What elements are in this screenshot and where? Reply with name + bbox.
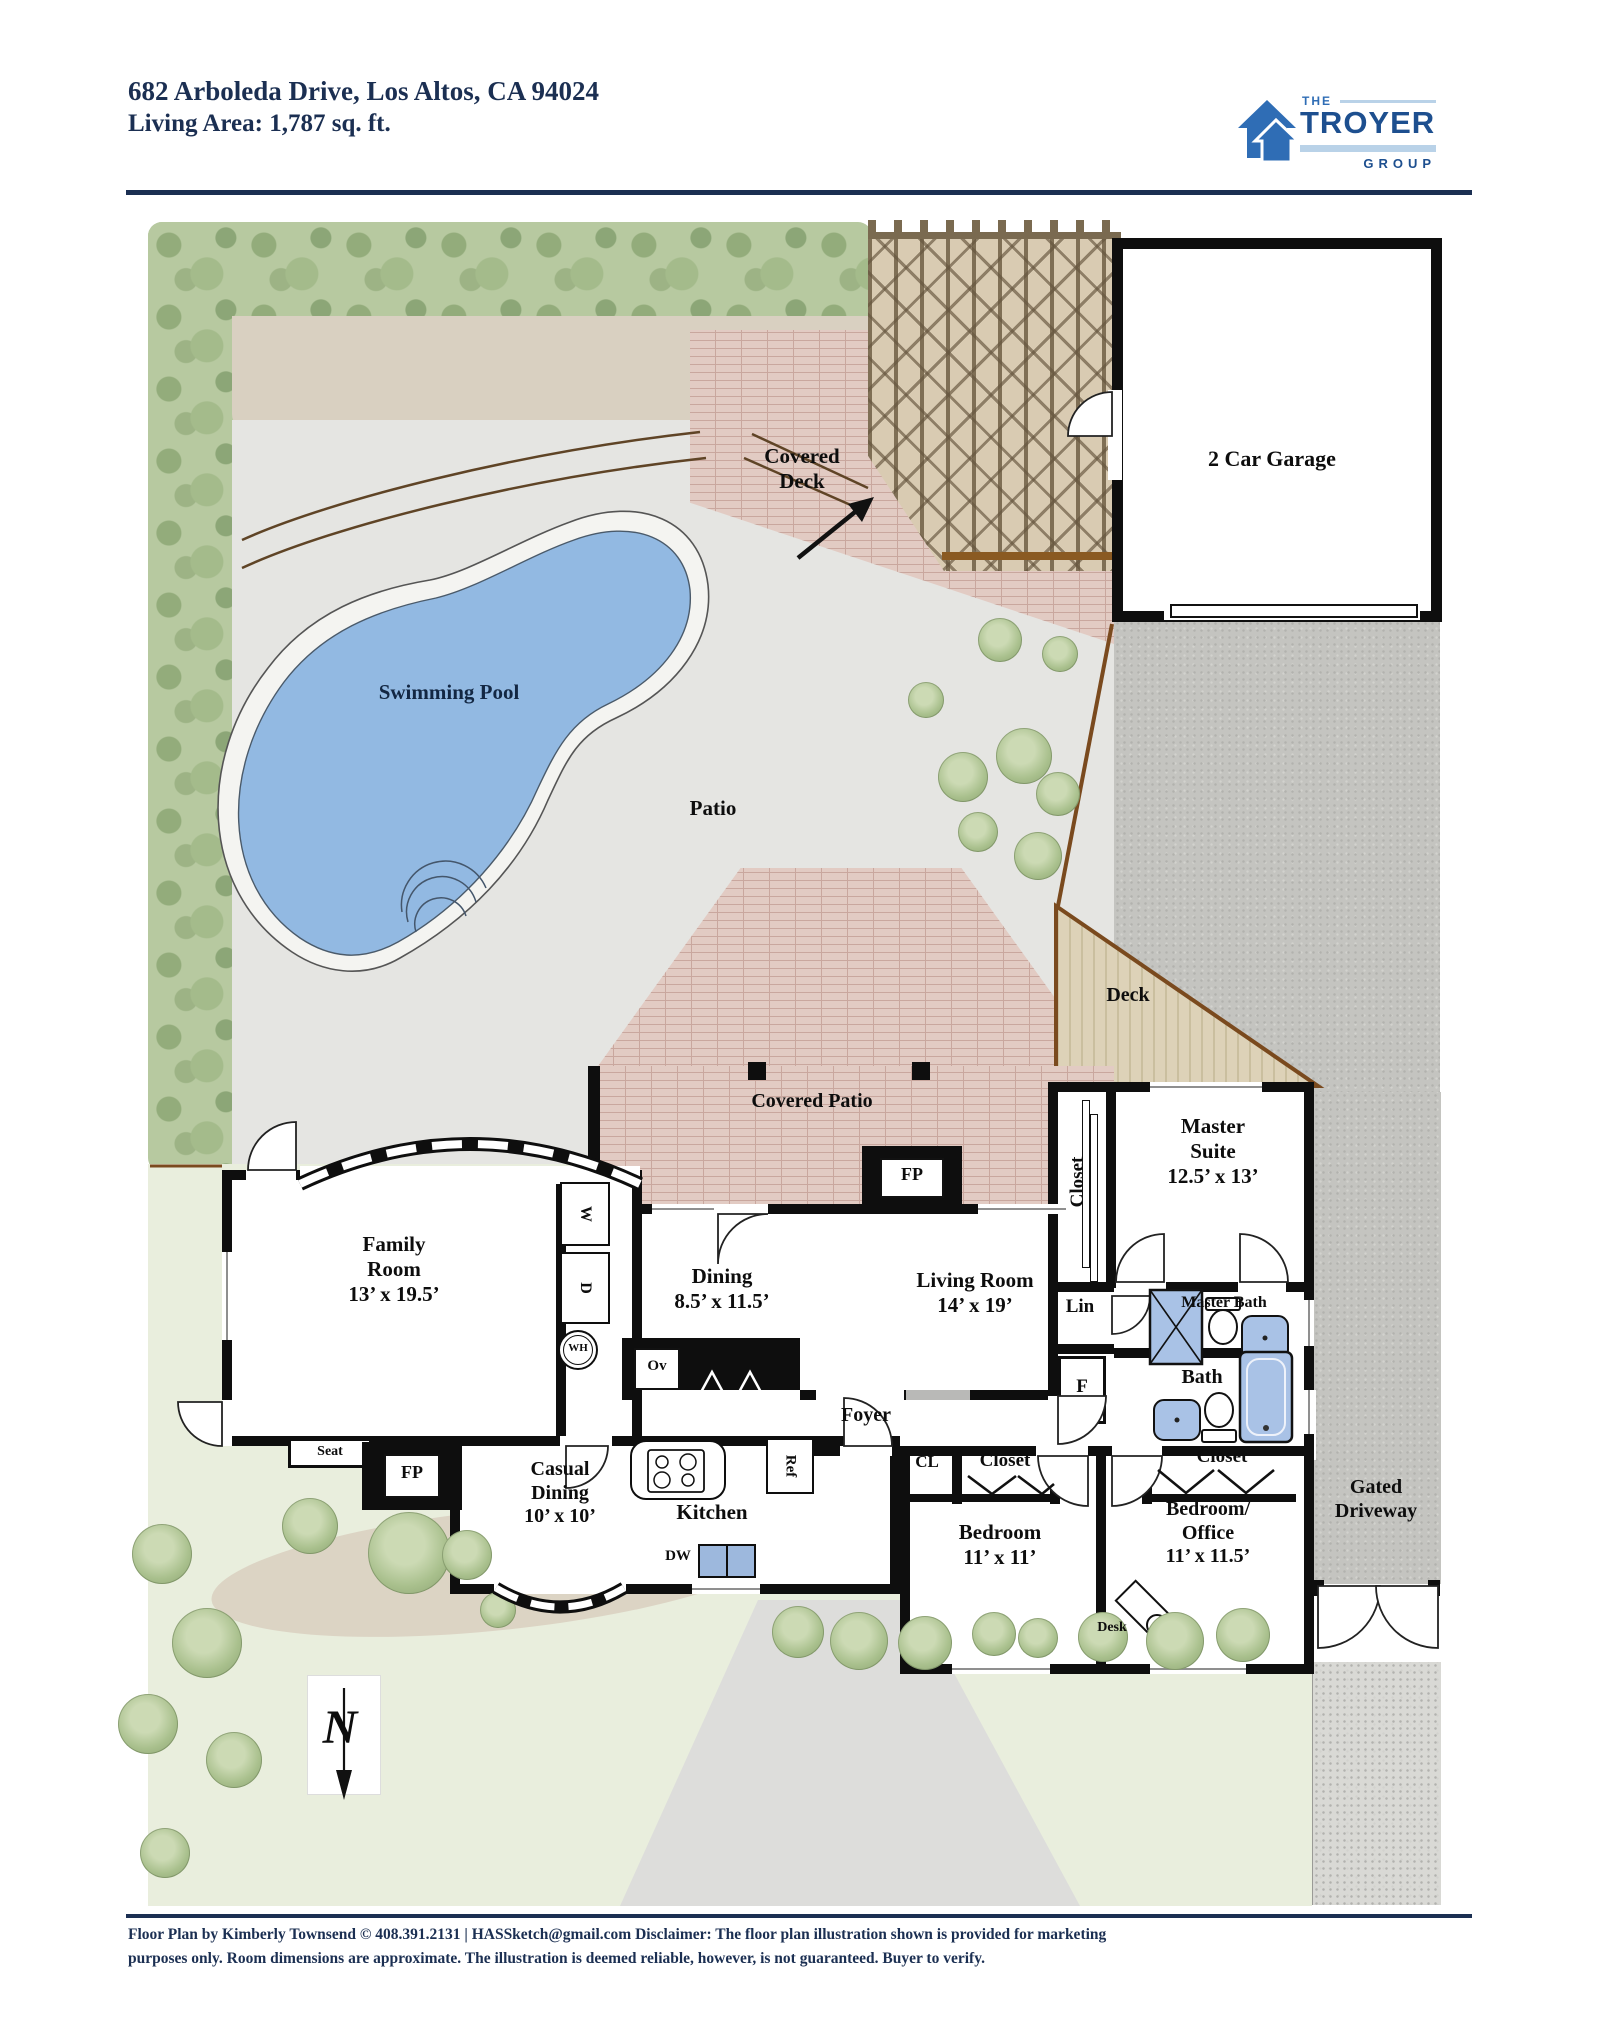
oven-label: Ov [647, 1358, 666, 1376]
tree [772, 1606, 824, 1658]
office-door-gap [1112, 1446, 1162, 1456]
tree [1042, 636, 1078, 672]
master-south-wall-a [1166, 1282, 1238, 1292]
driveway-below-gate [1312, 1662, 1441, 1905]
bedroom-closet-label: Closet [980, 1450, 1031, 1472]
living-fp-label: FP [901, 1164, 923, 1185]
covered-patio-label: Covered Patio [751, 1090, 872, 1114]
tree [938, 752, 988, 802]
tree [442, 1530, 492, 1580]
tree [132, 1524, 192, 1584]
masterbath-window [1304, 1300, 1314, 1346]
bath-window [1304, 1390, 1314, 1434]
tree [1014, 832, 1062, 880]
seat-label: Seat [317, 1444, 343, 1461]
dining-door-gap [714, 1204, 768, 1214]
washer-label: W [576, 1206, 594, 1222]
lin-furnace-wall [1048, 1344, 1114, 1354]
driveway-upper [1114, 620, 1440, 1096]
gate-zone [1312, 1584, 1440, 1662]
hedge-left [148, 222, 234, 1172]
linen-label: Lin [1066, 1296, 1095, 1318]
tree [1146, 1612, 1204, 1670]
gate-post-right [1428, 1580, 1440, 1596]
tree [282, 1498, 338, 1554]
floor-plan-page: 682 Arboleda Drive, Los Altos, CA 94024 … [0, 0, 1600, 2036]
north-letter: N [323, 1700, 358, 1757]
master-south-wall-b [1286, 1282, 1306, 1292]
family-door-gap [246, 1170, 296, 1180]
cl-label: CL [915, 1452, 939, 1472]
covered-patio [588, 1066, 1114, 1216]
dryer-label: D [576, 1282, 594, 1294]
tree [118, 1694, 178, 1754]
hall-master-gap [1048, 1396, 1058, 1446]
kitchen-label: Kitchen [676, 1500, 747, 1525]
foyer-label: Foyer [841, 1404, 891, 1428]
furnace-label: F [1076, 1376, 1088, 1398]
ref-label: Ref [782, 1455, 799, 1478]
patio-label: Patio [690, 796, 737, 821]
bath-label: Bath [1181, 1366, 1222, 1390]
page-title: 682 Arboleda Drive, Los Altos, CA 94024 [128, 76, 599, 107]
living-room-label: Living Room 14’ x 19’ [916, 1268, 1033, 1318]
tree [972, 1612, 1016, 1656]
tree [978, 618, 1022, 662]
gated-driveway-label: Gated Driveway [1335, 1476, 1417, 1523]
garage-door-panel [1170, 604, 1418, 618]
master-suite-label: Master Suite 12.5’ x 13’ [1167, 1114, 1258, 1188]
covered-deck-label: Covered Deck [764, 444, 839, 494]
master-closet-slider-b [1090, 1114, 1098, 1282]
water-heater-label: WH [568, 1342, 588, 1355]
tree [830, 1612, 888, 1670]
tree [1018, 1618, 1058, 1658]
header-rule [126, 190, 1472, 195]
kitchen-opening [642, 1390, 800, 1400]
family-fp-label: FP [401, 1462, 423, 1483]
living-area-subtitle: Living Area: 1,787 sq. ft. [128, 110, 391, 138]
footer-text-line2: purposes only. Room dimensions are appro… [128, 1950, 1472, 1968]
tree [480, 1592, 516, 1628]
logo-the-line [1340, 100, 1436, 103]
closet-lin-wall [1048, 1282, 1114, 1292]
gate-post-left [1312, 1580, 1324, 1596]
dishwasher-divider [726, 1546, 728, 1576]
tree [172, 1608, 242, 1678]
bedroom-window [952, 1664, 1050, 1674]
garage-side-door-gap [1108, 390, 1122, 480]
masterbath-bath-wall [1114, 1348, 1246, 1358]
bedroom-label: Bedroom 11’ x 11’ [959, 1520, 1041, 1570]
master-window [1150, 1082, 1262, 1092]
deck-label: Deck [1106, 984, 1149, 1008]
tree [140, 1828, 190, 1878]
tree [1036, 772, 1080, 816]
office-closet-label: Closet [1197, 1446, 1248, 1468]
kitchen-island [630, 1440, 726, 1500]
tree [1216, 1608, 1270, 1662]
tree [898, 1616, 952, 1670]
logo-house-back [1238, 100, 1296, 158]
patio-post [748, 1062, 766, 1080]
troyer-house-icon [1236, 96, 1300, 166]
logo: THE TROYER GROUP [1236, 92, 1436, 188]
master-closet-wall [1106, 1092, 1116, 1288]
bedroom-door-gap [1036, 1446, 1088, 1456]
swimming-pool-label: Swimming Pool [379, 680, 520, 705]
foyer-entry-gap [840, 1446, 892, 1456]
foyer-opening [816, 1390, 904, 1400]
dw-label: DW [665, 1548, 691, 1566]
master-closet-label: Closet [1067, 1157, 1089, 1208]
family-room [222, 1170, 572, 1446]
logo-bar [1300, 145, 1436, 152]
family-left-door-gap [222, 1400, 232, 1446]
logo-troyer: TROYER [1300, 105, 1435, 141]
garage [1112, 238, 1442, 622]
family-room-label: Family Room 13’ x 19.5’ [348, 1232, 439, 1306]
footer-text-line1: Floor Plan by Kimberly Townsend © 408.39… [128, 1926, 1472, 1944]
garage-label: 2 Car Garage [1208, 446, 1336, 472]
casual-dining-label: Casual Dining 10’ x 10’ [524, 1458, 596, 1529]
logo-group: GROUP [1346, 156, 1436, 171]
master-bath-label: Master Bath [1181, 1294, 1266, 1313]
casual-bay-gap [494, 1584, 626, 1594]
tree [206, 1732, 262, 1788]
tree [958, 812, 998, 852]
desk-label: Desk [1097, 1620, 1127, 1637]
dining-label: Dining 8.5’ x 11.5’ [674, 1264, 769, 1314]
trellis-post-row [868, 220, 1114, 234]
footer-rule [126, 1914, 1472, 1918]
trellis-base-bar [942, 552, 1114, 560]
tree [908, 682, 944, 718]
family-left-window [222, 1252, 232, 1340]
patio-post [912, 1062, 930, 1080]
living-window [978, 1204, 1066, 1214]
kitchen-window [692, 1584, 760, 1594]
logo-house-front [1255, 120, 1298, 162]
tree [368, 1512, 450, 1594]
living-threshold [906, 1390, 970, 1400]
bedroom-office-label: Bedroom/ Office 11’ x 11.5’ [1166, 1498, 1251, 1569]
laundry-door-gap [560, 1436, 612, 1446]
closet-bottom-wall-a [908, 1494, 1054, 1502]
